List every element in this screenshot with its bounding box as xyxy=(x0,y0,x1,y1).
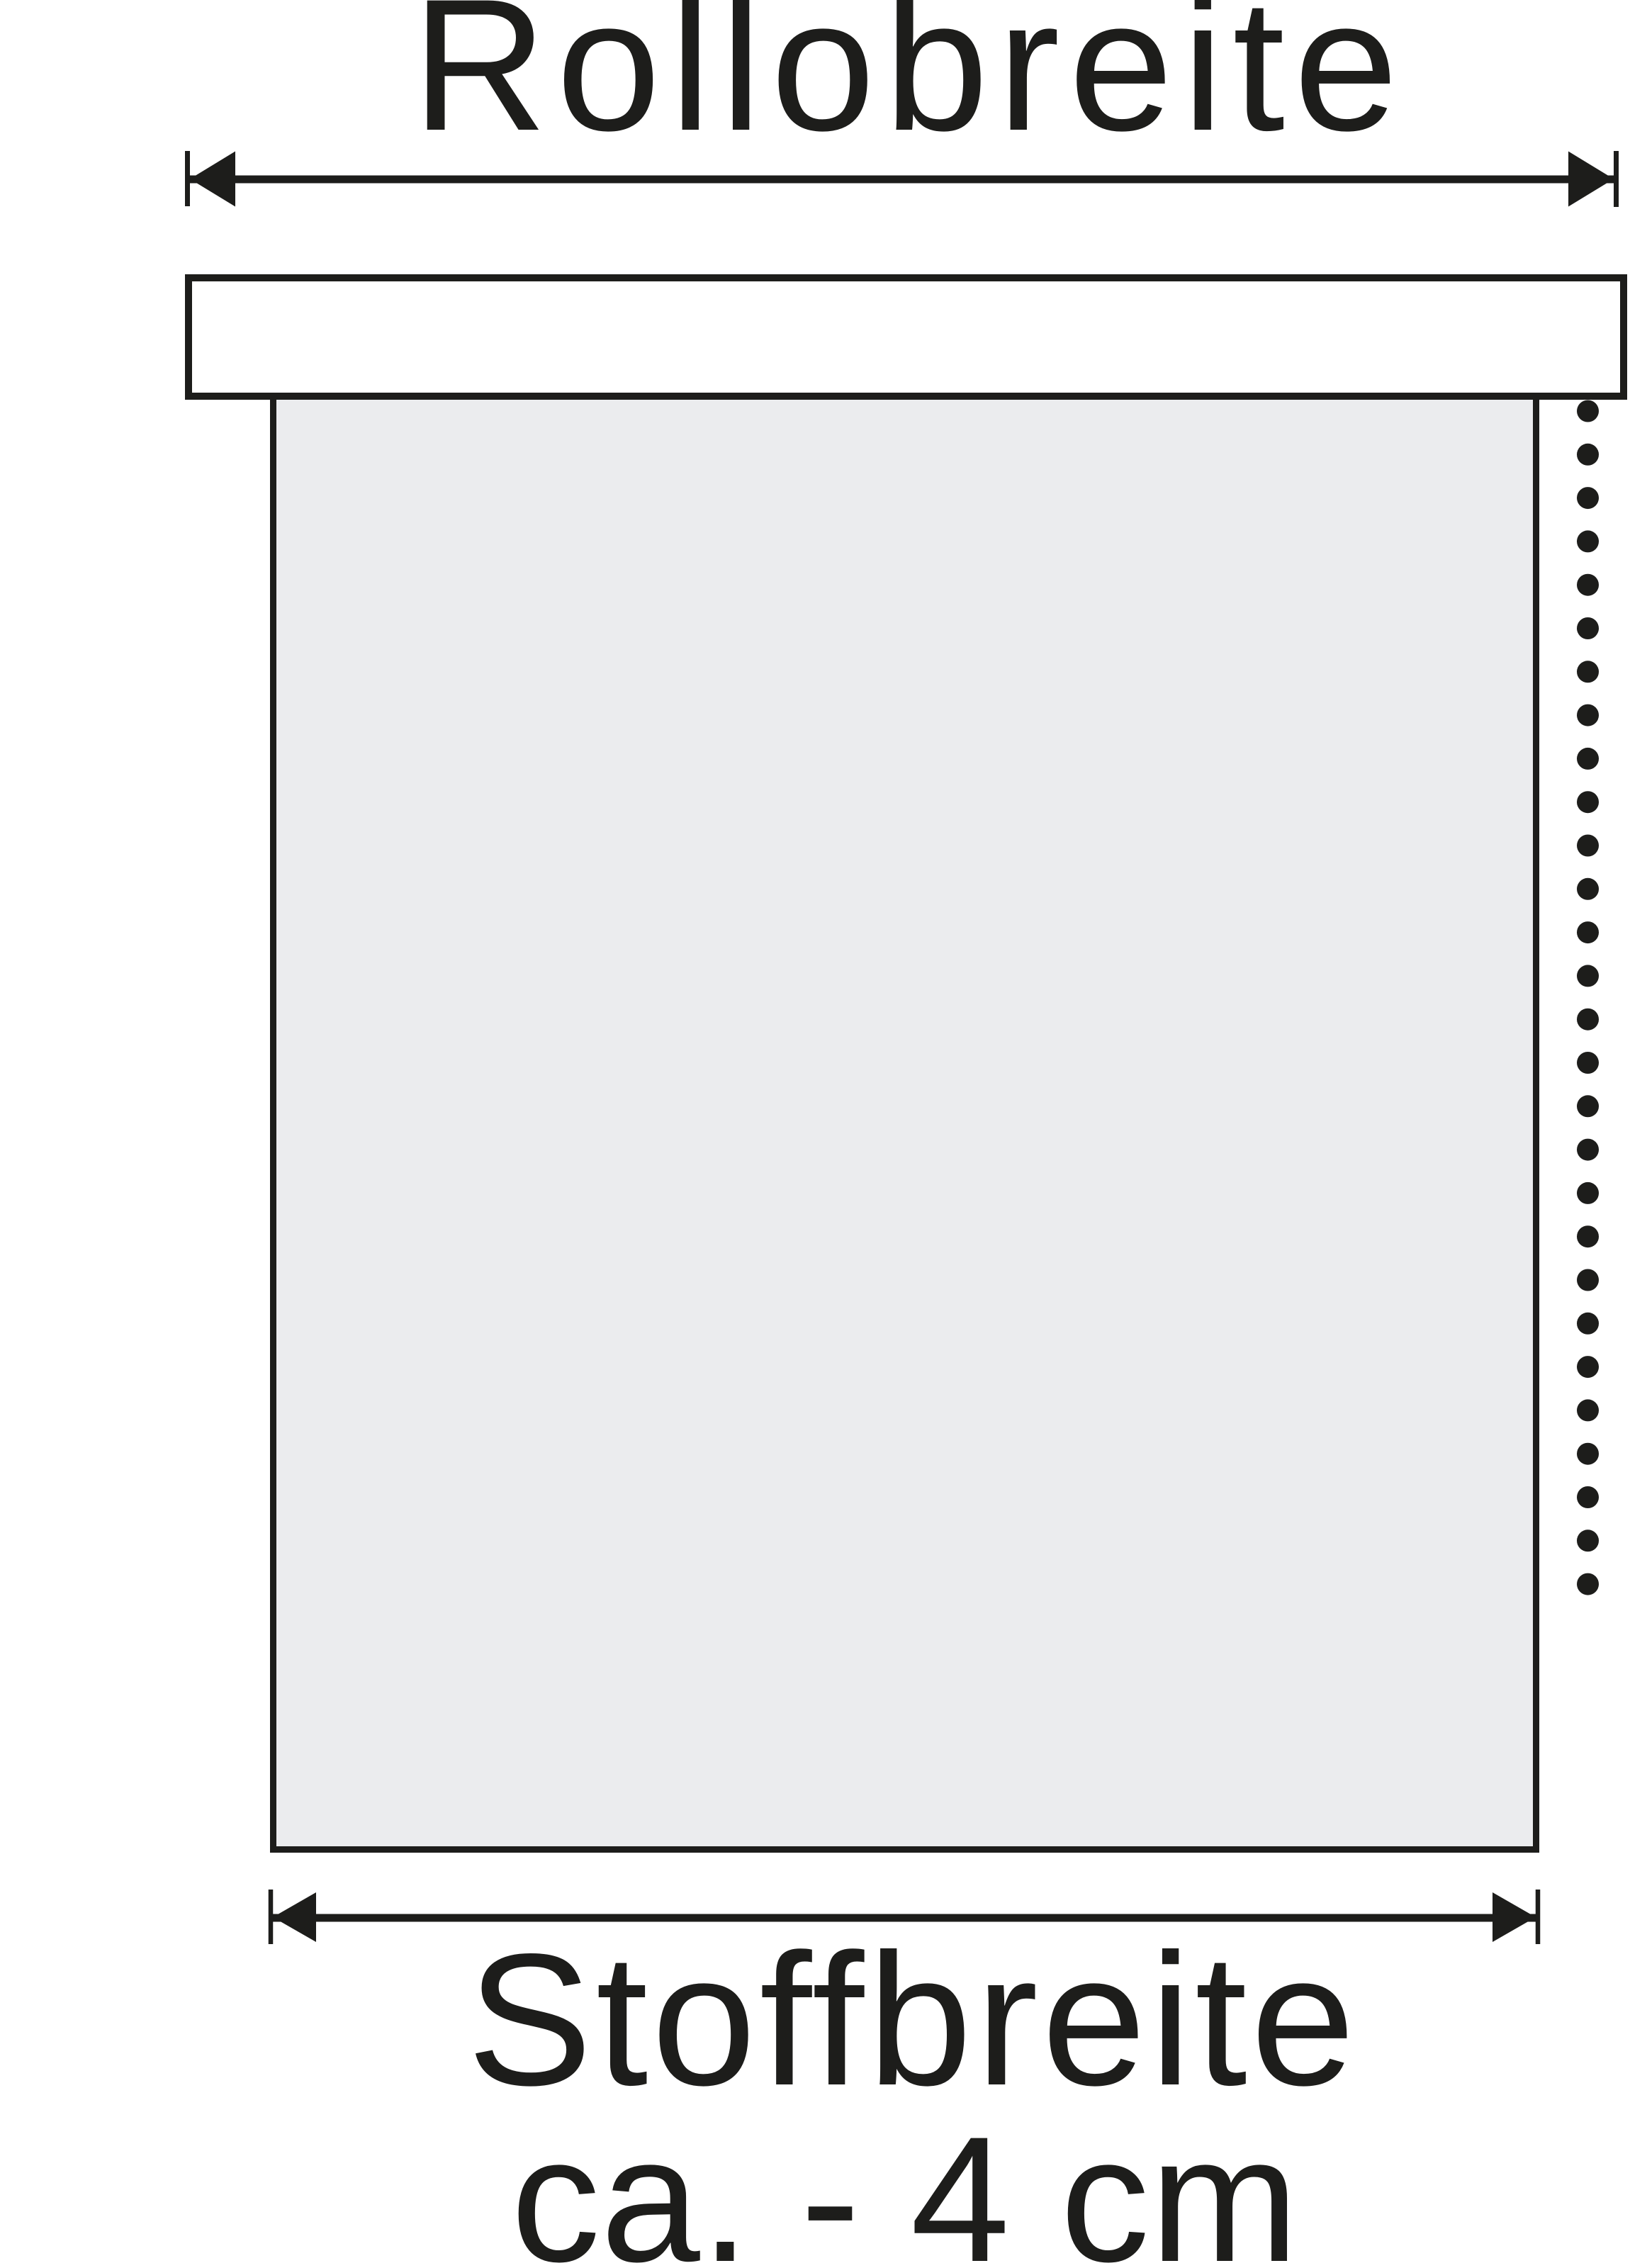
svg-text:Rollobreite: Rollobreite xyxy=(412,0,1407,170)
svg-text:Stoffbreite: Stoffbreite xyxy=(467,1915,1359,2125)
svg-text:ca. - 4 cm: ca. - 4 cm xyxy=(511,2100,1299,2268)
